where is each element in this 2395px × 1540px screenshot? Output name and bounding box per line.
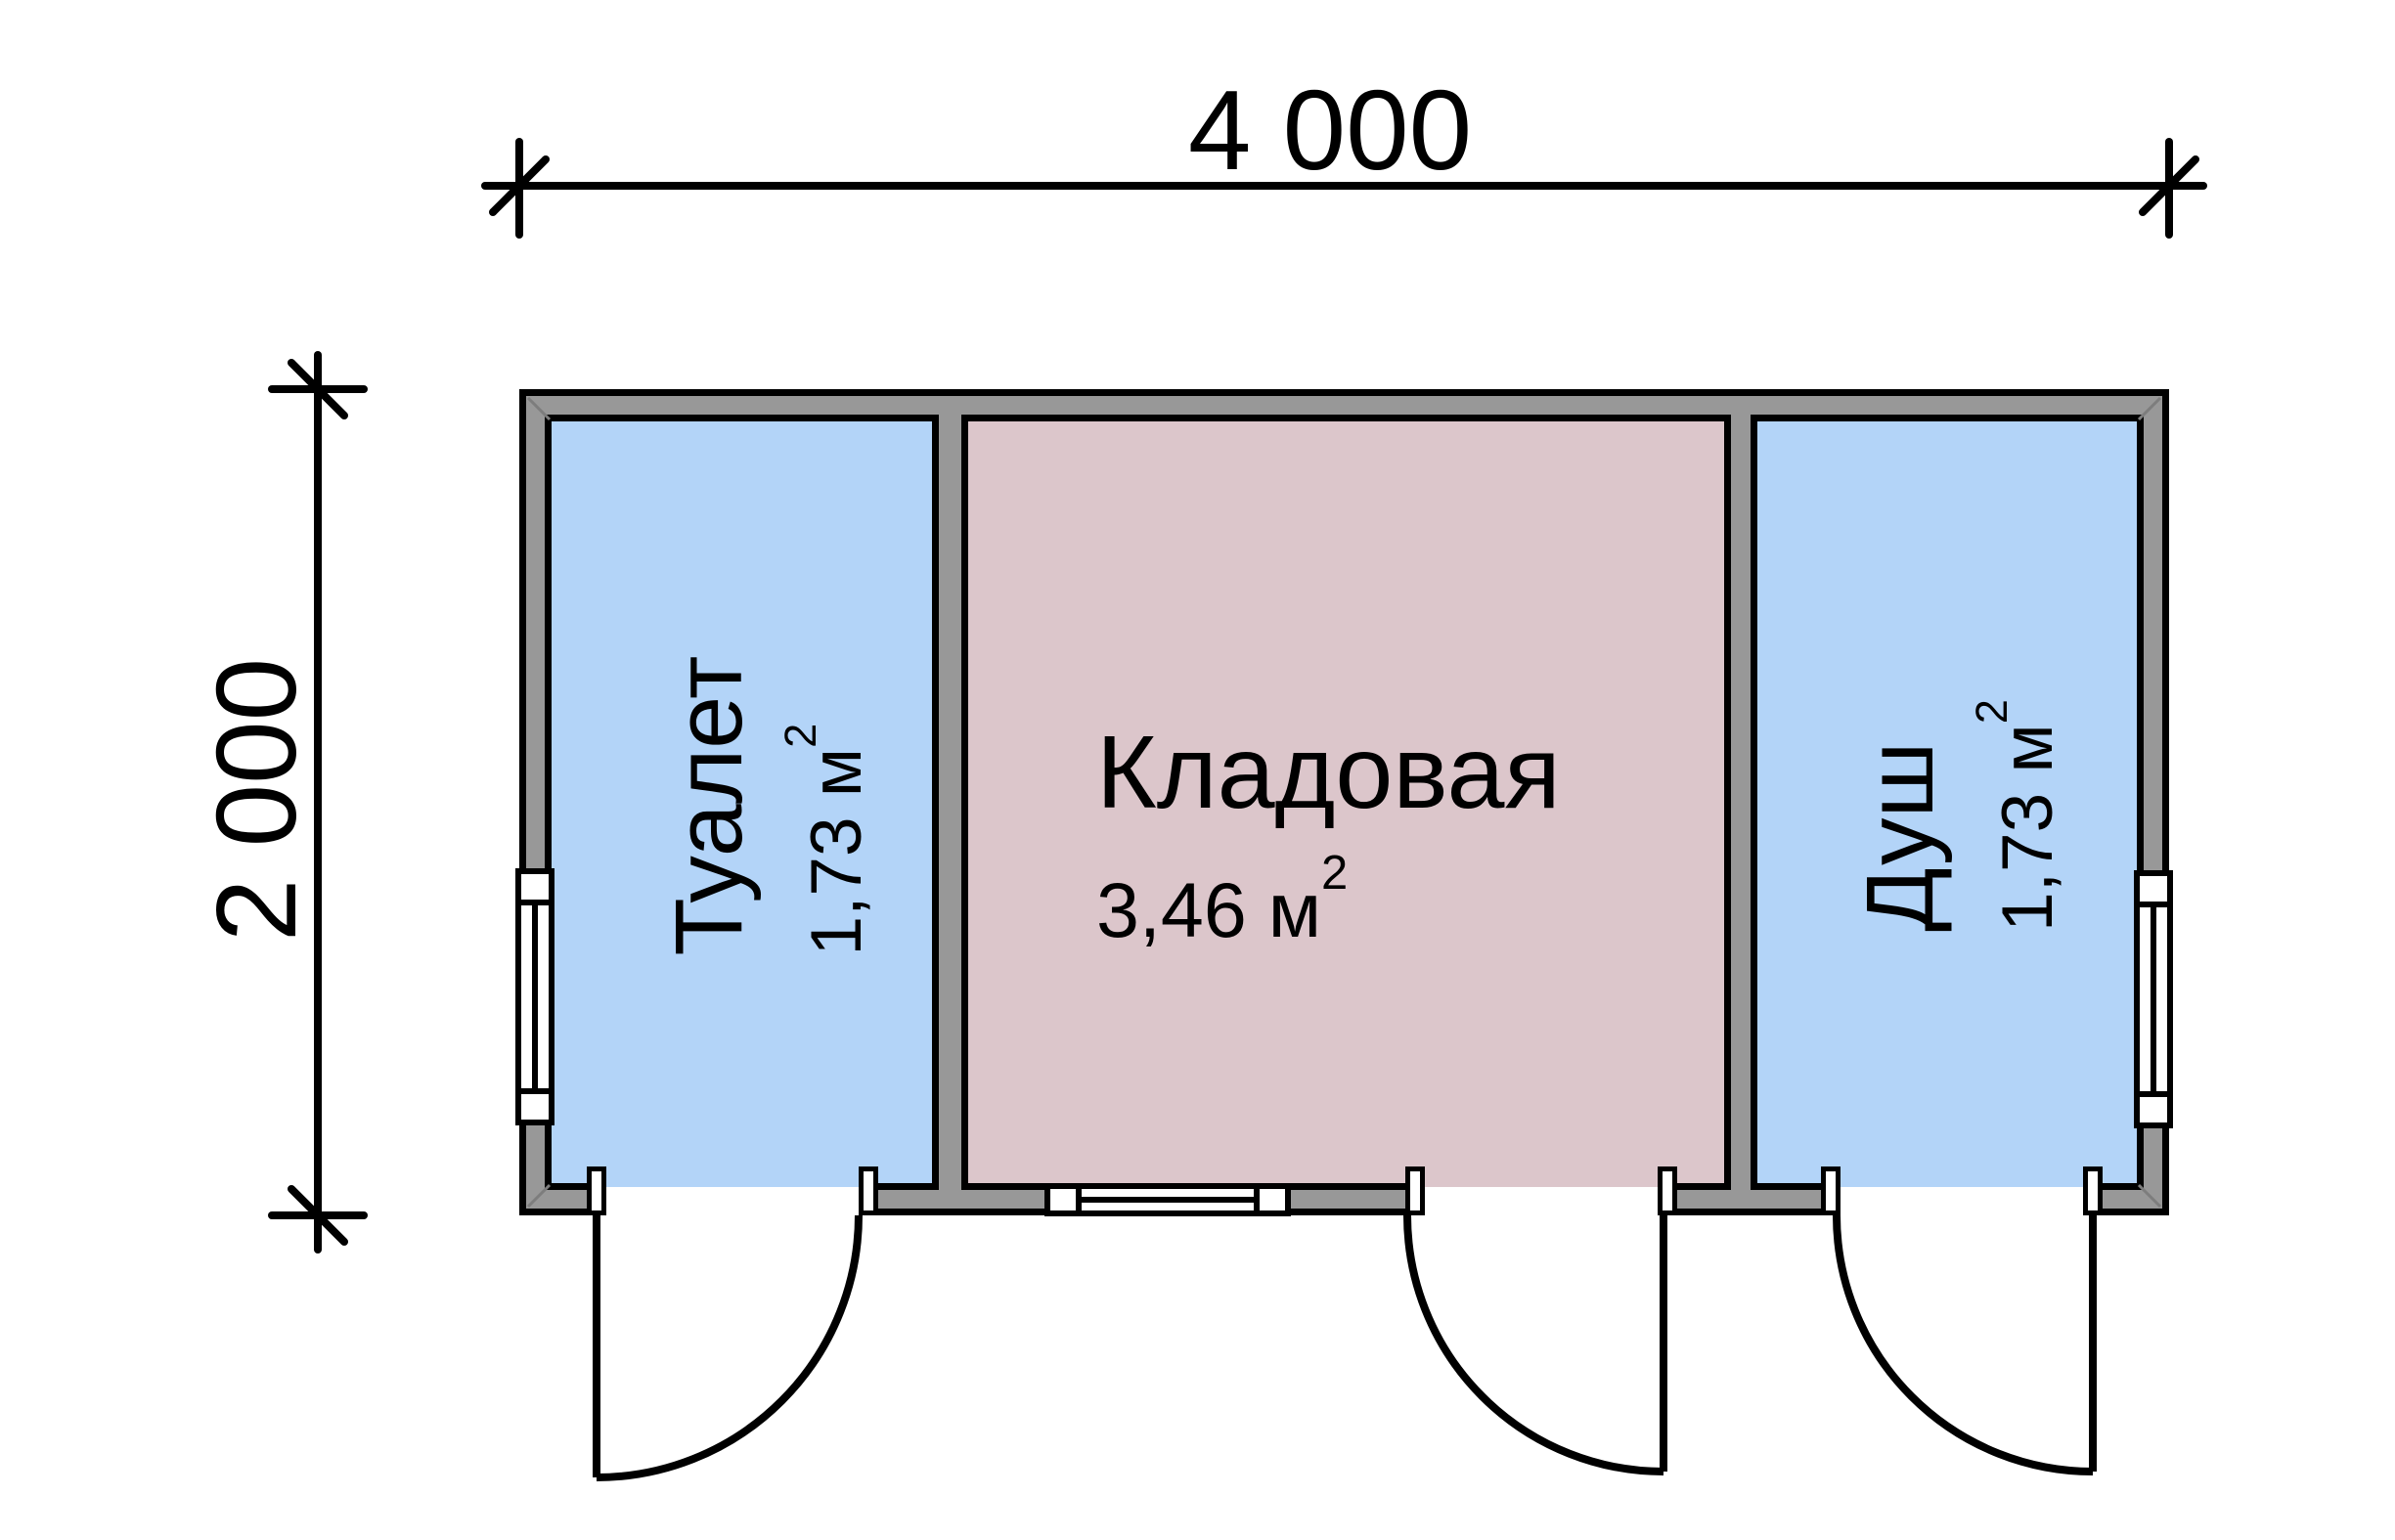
door-swing-arc (1837, 1215, 2093, 1472)
corner-miter-lines (528, 398, 2160, 1207)
door-toilet (597, 1215, 859, 1477)
door-swing-arc (597, 1215, 859, 1477)
dimension-left (272, 355, 364, 1250)
door-storage (1407, 1215, 1663, 1472)
linework-overlay (0, 0, 2395, 1540)
door-swing-arc (1407, 1215, 1663, 1472)
floor-plan-canvas: Туалет 1,73 м2 Кладовая 3,46 м2 Душ 1,73… (0, 0, 2395, 1540)
door-shower (1837, 1215, 2093, 1472)
dimension-top (485, 142, 2203, 235)
